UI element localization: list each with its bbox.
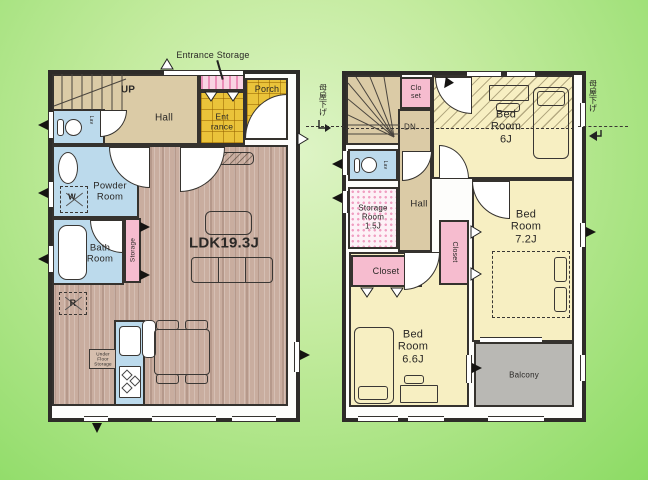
- toilet-bowl-icon: [361, 157, 377, 173]
- window: [507, 71, 535, 77]
- toilet-tank-icon: [57, 119, 64, 136]
- eaves-label-right: 母屋下げ: [588, 80, 597, 113]
- toilet2-room: [348, 149, 398, 181]
- eaves-arrow-icon: [588, 128, 604, 144]
- porch-arrow-icon: [297, 132, 309, 146]
- pillow-icon: [554, 257, 567, 282]
- window: [232, 416, 276, 422]
- toilet-tank-icon: [354, 158, 360, 173]
- toilet-room: [52, 109, 105, 145]
- window-arrow-icon: [38, 188, 48, 198]
- window: [164, 70, 202, 76]
- powder-room-label: Powder Room: [93, 181, 126, 202]
- under-floor-storage-label: Under Floor Storage: [94, 351, 112, 366]
- washer-label: W: [68, 194, 76, 203]
- window-arrow-icon: [38, 120, 48, 130]
- stairs-up-icon: [52, 74, 130, 110]
- hall-label: Hall: [155, 112, 173, 123]
- folding-door-arrow-icon: [390, 287, 404, 298]
- bed-icon: [354, 327, 394, 404]
- bathtub-icon: [58, 225, 87, 280]
- window-arrow-icon: [38, 254, 48, 264]
- sliding-door: [152, 416, 216, 422]
- folding-door-arrow-icon: [226, 91, 240, 102]
- closet-top-label: Clo set: [410, 85, 421, 101]
- entrance-storage-note: Entrance Storage: [176, 50, 249, 60]
- stove-icon: [119, 366, 141, 398]
- pillow-icon: [554, 287, 567, 312]
- window-arrow-icon: [332, 159, 342, 169]
- window: [408, 416, 444, 422]
- entrance-label: Ent rance: [211, 112, 233, 131]
- storage-label: Storage: [129, 238, 136, 262]
- balcony-label: Balcony: [509, 372, 539, 381]
- window-arrow-icon: [332, 193, 342, 203]
- up-label: UP: [121, 84, 135, 95]
- bedroom-66j-label: Bed Room 6.6J: [398, 329, 428, 366]
- eaves-dashed-line: [346, 128, 574, 129]
- window: [580, 103, 586, 127]
- bedroom-72j-label: Bed Room 7.2J: [511, 209, 541, 246]
- entry-arrow-icon: [160, 58, 174, 70]
- chair-icon: [156, 320, 179, 330]
- window: [358, 416, 398, 422]
- folding-door-arrow-icon: [360, 287, 374, 298]
- window-arrow-icon: [300, 350, 310, 360]
- storage-room-label: Storage Room 1.5J: [358, 205, 387, 232]
- porch-label: Porch: [255, 84, 280, 94]
- window-arrow-icon: [586, 227, 596, 237]
- kitchen-counter: [114, 320, 145, 406]
- door-arrow-icon: [140, 270, 150, 280]
- sink-icon: [58, 152, 78, 184]
- bed-icon: [533, 87, 569, 159]
- chair-icon: [185, 374, 208, 384]
- eaves-label-left: 母屋下げ: [318, 84, 327, 117]
- folding-door-arrow-icon: [470, 225, 482, 239]
- toilet-bowl-icon: [65, 119, 82, 136]
- stairs-down-icon: [348, 77, 400, 143]
- ldk-label: LDK19.3J: [189, 236, 259, 253]
- window: [48, 246, 54, 272]
- window-arrow-icon: [92, 423, 102, 433]
- sofa-icon: [191, 257, 273, 283]
- chair-icon: [185, 320, 208, 330]
- chair-icon: [404, 375, 424, 384]
- desk-icon: [400, 385, 438, 403]
- balcony-window: [480, 337, 542, 343]
- eaves-arrow-icon: [316, 118, 332, 134]
- closet-left-label: Closet: [373, 266, 400, 276]
- desk-icon: [489, 85, 529, 101]
- bath-room-label: Bath Room: [87, 243, 113, 264]
- floor2-plan: Bed Room 6J DN Clo set Hall: [342, 71, 586, 422]
- kitchen-sink-icon: [119, 326, 141, 356]
- window: [342, 191, 348, 213]
- window: [342, 151, 348, 175]
- hall2-label: Hall: [410, 200, 427, 211]
- window: [488, 416, 544, 422]
- closet-mid-label: Closet: [450, 241, 458, 262]
- chair-icon: [156, 374, 179, 384]
- floor-plan-page: UP Hall Lav Ent rance Porch LDK19.3J Pow…: [0, 0, 648, 480]
- bedroom-6j-label: Bed Room 6J: [491, 109, 521, 146]
- pillow-icon: [358, 386, 388, 400]
- door-arrow-icon: [140, 222, 150, 232]
- window: [48, 112, 54, 138]
- balcony-door-arrow-icon: [472, 363, 482, 373]
- window: [467, 71, 501, 77]
- window: [580, 355, 586, 381]
- folding-door-arrow-icon: [204, 91, 218, 102]
- eaves-dashed-stub: [578, 126, 628, 127]
- lav-label: Lav: [87, 116, 93, 125]
- dining-table-icon: [154, 329, 210, 375]
- window: [48, 182, 54, 207]
- pillow-icon: [537, 91, 565, 106]
- lav2-label: Lav: [381, 161, 387, 170]
- window: [84, 416, 108, 422]
- coffee-table-icon: [205, 211, 252, 235]
- folding-door-arrow-icon: [470, 267, 482, 281]
- floor1-plan: UP Hall Lav Ent rance Porch LDK19.3J Pow…: [48, 70, 300, 422]
- fridge-label: R: [70, 298, 77, 308]
